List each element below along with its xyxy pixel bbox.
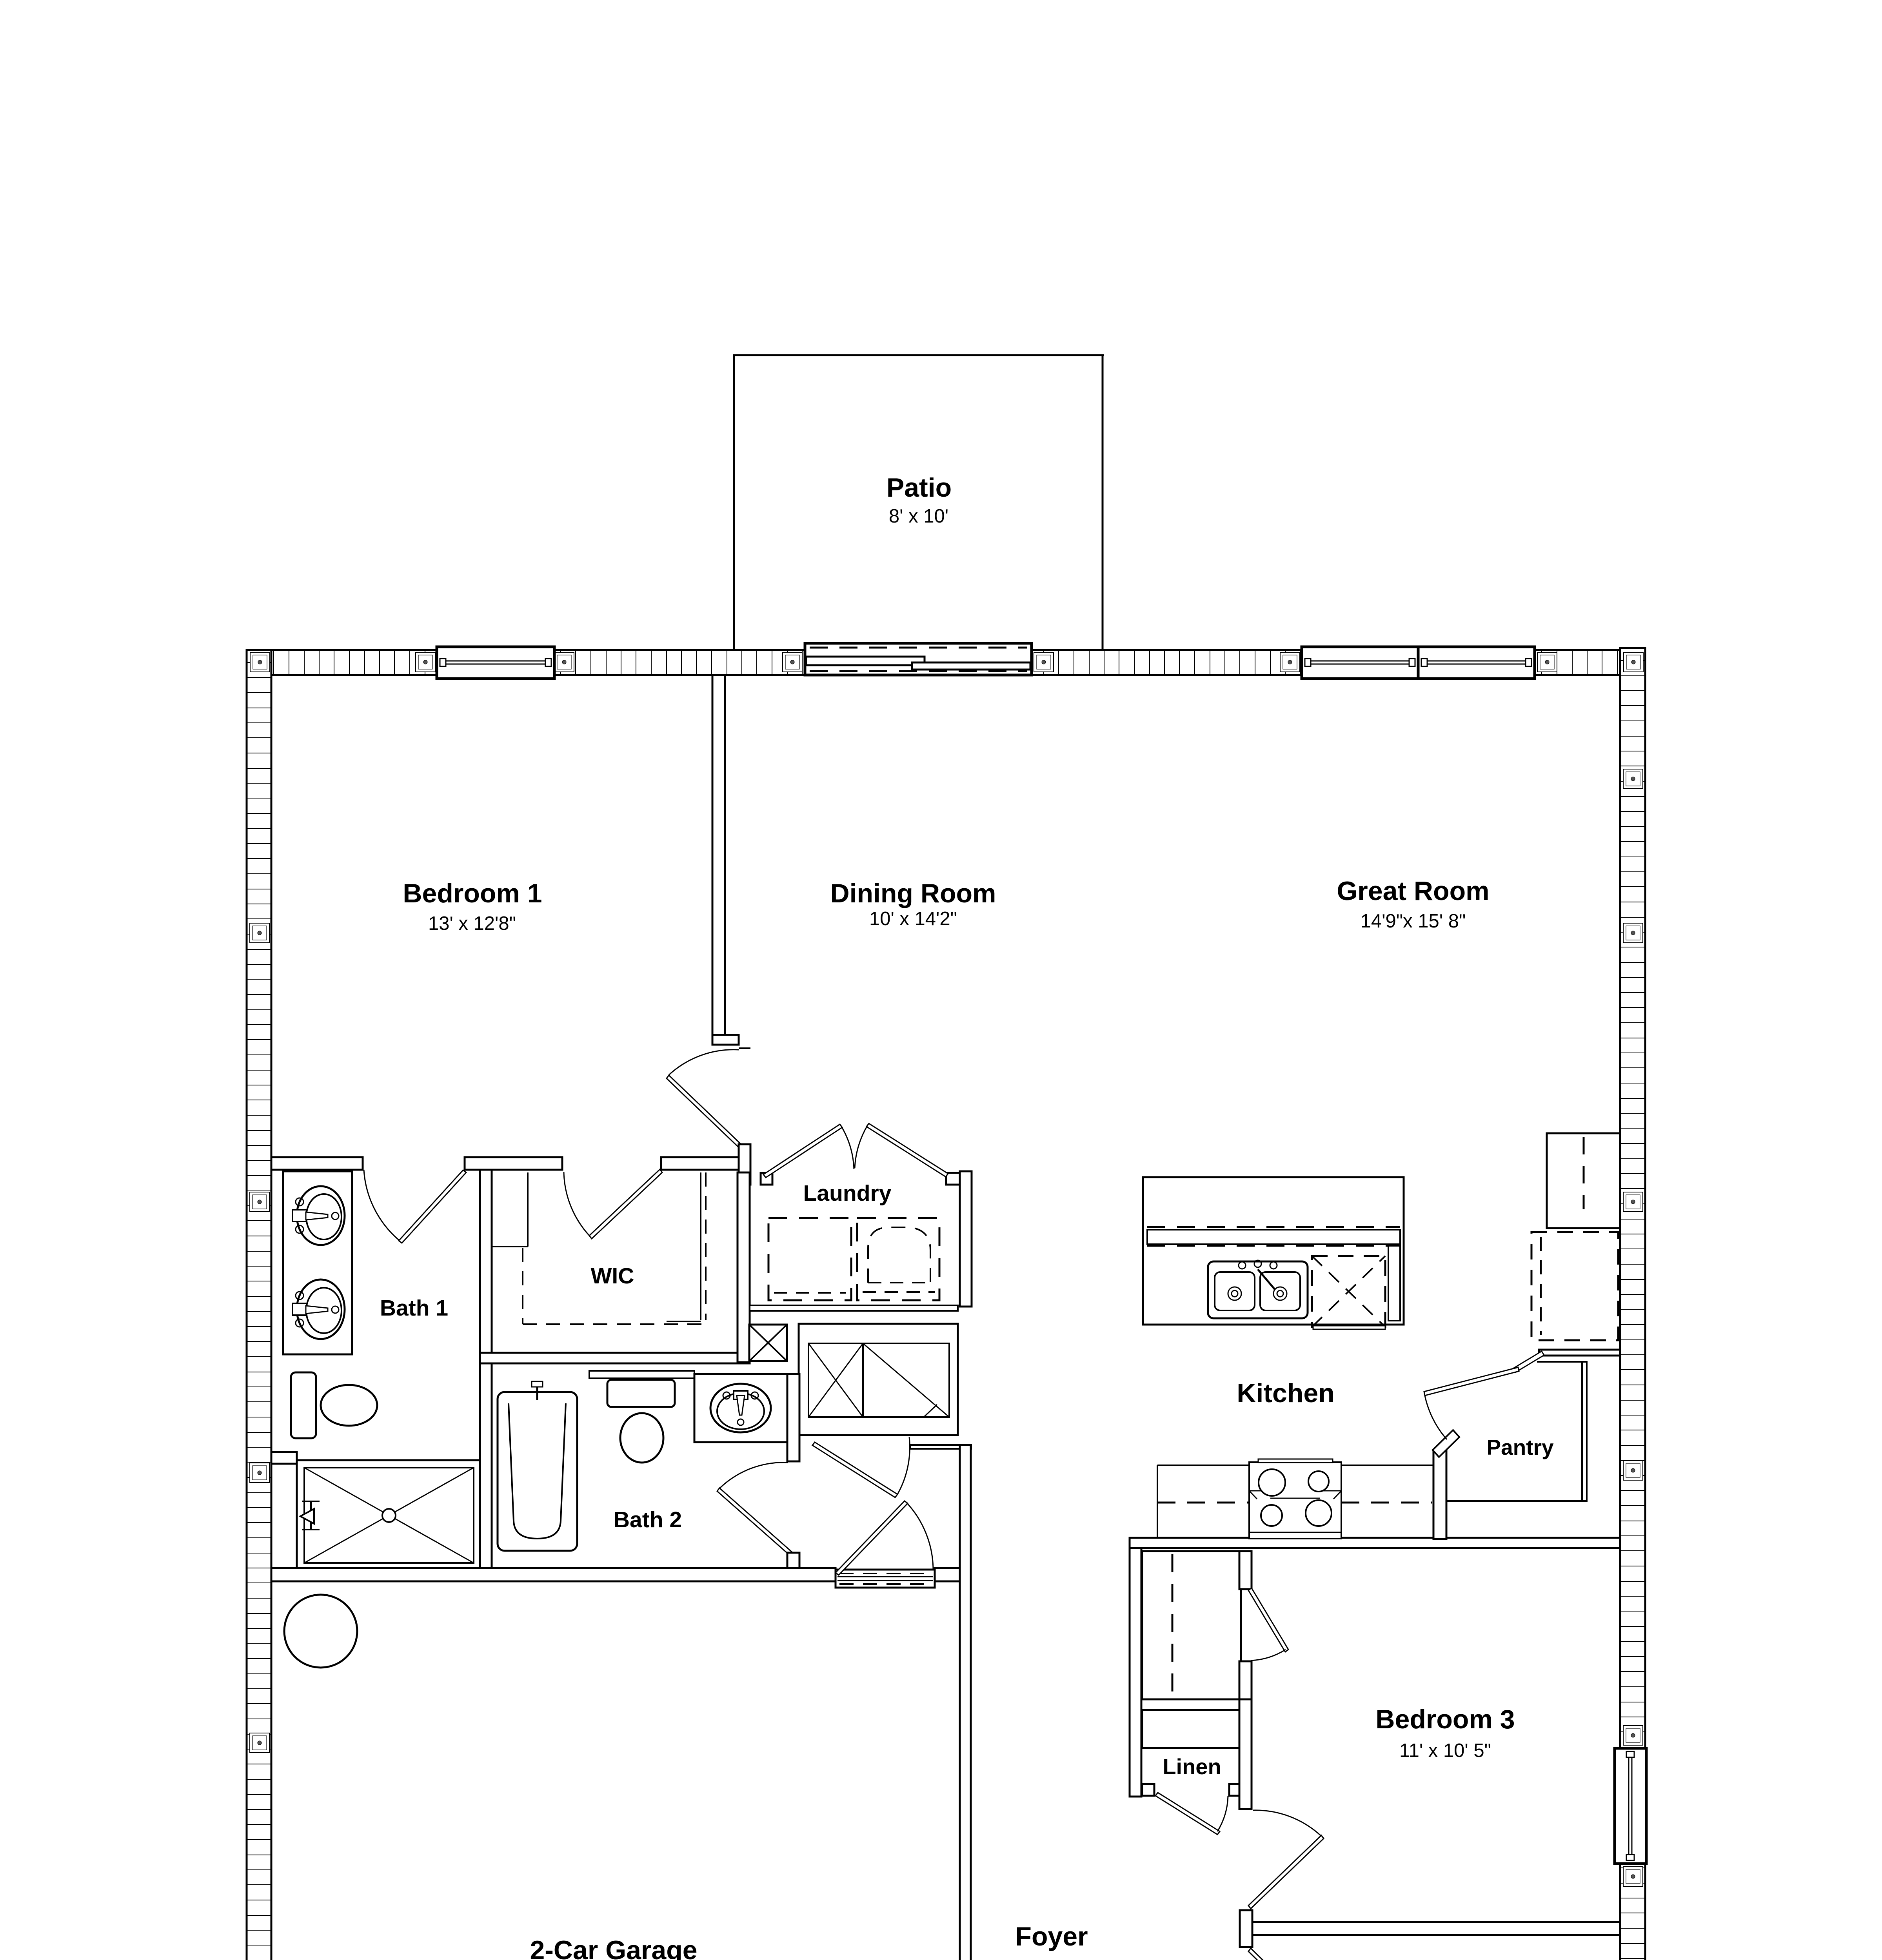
svg-text:Linen: Linen bbox=[1163, 1754, 1221, 1779]
svg-text:Great Room: Great Room bbox=[1337, 876, 1489, 906]
svg-text:2-Car Garage: 2-Car Garage bbox=[530, 1935, 697, 1960]
svg-text:Bedroom 3: Bedroom 3 bbox=[1375, 1704, 1515, 1734]
svg-text:11' x 10' 5": 11' x 10' 5" bbox=[1399, 1740, 1491, 1761]
svg-text:WIC: WIC bbox=[591, 1263, 634, 1289]
svg-text:Bath 2: Bath 2 bbox=[614, 1507, 682, 1532]
svg-text:Laundry: Laundry bbox=[803, 1181, 892, 1206]
svg-text:10' x 14'2": 10' x 14'2" bbox=[869, 908, 957, 929]
svg-text:14'9"x 15' 8": 14'9"x 15' 8" bbox=[1361, 911, 1466, 932]
svg-text:13' x 12'8": 13' x 12'8" bbox=[428, 913, 516, 934]
svg-text:Patio: Patio bbox=[887, 473, 952, 503]
svg-text:8' x 10': 8' x 10' bbox=[889, 506, 948, 527]
svg-text:Pantry: Pantry bbox=[1486, 1435, 1554, 1459]
svg-text:Bedroom 1: Bedroom 1 bbox=[403, 878, 542, 908]
svg-text:Kitchen: Kitchen bbox=[1237, 1378, 1334, 1408]
svg-text:Foyer: Foyer bbox=[1015, 1922, 1088, 1951]
svg-text:Dining Room: Dining Room bbox=[830, 878, 996, 908]
svg-text:Bath 1: Bath 1 bbox=[380, 1296, 448, 1321]
